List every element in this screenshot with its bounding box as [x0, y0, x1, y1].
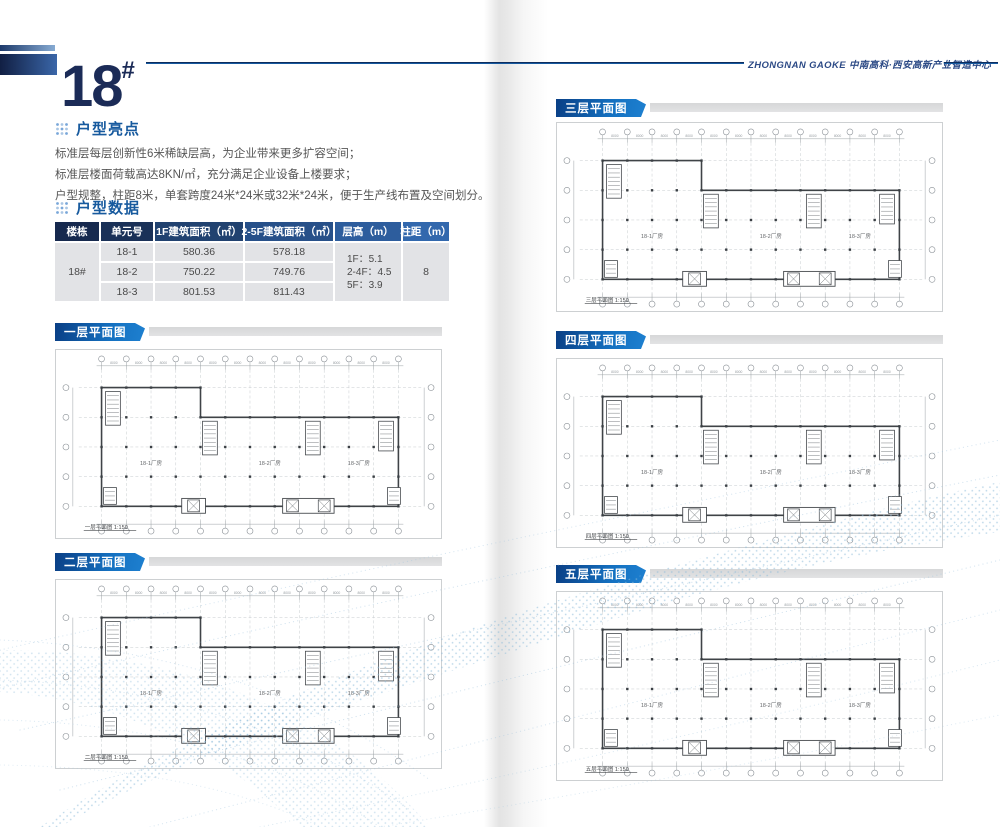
svg-text:8000: 8000 [184, 591, 192, 595]
brochure-spread: 18# ZHONGNAN GAOKE 中南高科·西安高新产业智造中心 户型亮点 … [0, 0, 1000, 827]
svg-text:8000: 8000 [209, 361, 217, 365]
plan-labelbar [149, 327, 442, 336]
svg-text:8000: 8000 [883, 370, 891, 374]
data-title-text: 户型数据 [76, 197, 140, 218]
plan-label-floor2: 二层平面图 [55, 553, 145, 571]
cell-area25f: 578.18 [245, 243, 333, 261]
col-header-unit: 单元号 [101, 222, 153, 241]
svg-text:18-1厂房: 18-1厂房 [140, 459, 163, 467]
floor-height-line: 2-4F：4.5 [347, 266, 391, 279]
svg-text:8000: 8000 [883, 134, 891, 138]
floor-plan-drawing: 8000800080008000800080008000800080008000… [557, 123, 942, 311]
cell-unit: 18-3 [101, 283, 153, 301]
brand-line: ZHONGNAN GAOKE 中南高科·西安高新产业智造中心 [748, 57, 944, 71]
page-fold-gutter [484, 0, 548, 827]
floor-plan-drawing: 8000800080008000800080008000800080008000… [56, 350, 441, 538]
svg-text:8000: 8000 [382, 361, 390, 365]
svg-text:8000: 8000 [135, 591, 143, 595]
plan-labelbar [650, 103, 943, 112]
floor2-plan-box: 8000800080008000800080008000800080008000… [55, 579, 442, 769]
floor-plan-drawing: 8000800080008000800080008000800080008000… [557, 592, 942, 780]
svg-text:8000: 8000 [760, 370, 768, 374]
plan-label-floor1: 一层平面图 [55, 323, 145, 341]
svg-text:三层平面图 1:150: 三层平面图 1:150 [586, 296, 629, 304]
svg-text:8000: 8000 [760, 134, 768, 138]
svg-text:8000: 8000 [661, 603, 669, 607]
cell-area1f: 750.22 [155, 263, 243, 281]
plan-labelbar [650, 569, 943, 578]
col-header-spacing: 柱距（m） [403, 222, 449, 241]
svg-text:8000: 8000 [135, 361, 143, 365]
svg-text:8000: 8000 [735, 370, 743, 374]
floor-plan-drawing: 8000800080008000800080008000800080008000… [557, 359, 942, 547]
svg-text:8000: 8000 [333, 591, 341, 595]
svg-text:8000: 8000 [308, 591, 316, 595]
cell-area25f: 749.76 [245, 263, 333, 281]
svg-text:8000: 8000 [283, 361, 291, 365]
svg-text:8000: 8000 [259, 591, 267, 595]
svg-text:18-3厂房: 18-3厂房 [348, 459, 371, 467]
svg-text:8000: 8000 [809, 370, 817, 374]
floor-height-line: 5F：3.9 [347, 279, 383, 292]
svg-text:18-3厂房: 18-3厂房 [348, 689, 371, 697]
svg-text:8000: 8000 [710, 603, 718, 607]
building-number: 18# [61, 40, 135, 118]
svg-text:8000: 8000 [859, 603, 867, 607]
svg-text:8000: 8000 [685, 370, 693, 374]
svg-text:8000: 8000 [636, 603, 644, 607]
floor3-plan-box: 8000800080008000800080008000800080008000… [556, 122, 943, 312]
svg-text:8000: 8000 [636, 370, 644, 374]
svg-text:8000: 8000 [859, 370, 867, 374]
building-number-hash: # [122, 57, 135, 84]
svg-text:二层平面图 1:150: 二层平面图 1:150 [85, 753, 128, 761]
highlight-line: 标准层楼面荷载高达8KN/㎡，充分满足企业设备上楼要求； [55, 165, 490, 186]
svg-text:18-2厂房: 18-2厂房 [760, 468, 783, 476]
svg-text:8000: 8000 [809, 134, 817, 138]
header-rule-right [944, 62, 998, 64]
floor4-plan-box: 8000800080008000800080008000800080008000… [556, 358, 943, 548]
svg-text:18-3厂房: 18-3厂房 [849, 232, 872, 240]
floor-height-line: 1F：5.1 [347, 253, 383, 266]
svg-text:8000: 8000 [834, 370, 842, 374]
data-section-title: 户型数据 [55, 197, 140, 218]
unit-data-table: 楼栋 单元号 1F建筑面积（㎡） 2-5F建筑面积（㎡） 层高（m） 柱距（m）… [55, 222, 443, 301]
svg-text:8000: 8000 [611, 134, 619, 138]
svg-text:18-1厂房: 18-1厂房 [140, 689, 163, 697]
floor1-plan-box: 8000800080008000800080008000800080008000… [55, 349, 442, 539]
col-header-building: 楼栋 [55, 222, 99, 241]
svg-text:8000: 8000 [735, 603, 743, 607]
svg-text:18-2厂房: 18-2厂房 [760, 232, 783, 240]
svg-text:18-1厂房: 18-1厂房 [641, 468, 664, 476]
dotted-square-icon [55, 122, 69, 136]
highlight-line: 标准层每层创新性6米稀缺层高，为企业带来更多扩容空间； [55, 144, 490, 165]
svg-text:8000: 8000 [110, 591, 118, 595]
building-number-value: 18 [61, 54, 122, 119]
highlights-title-text: 户型亮点 [76, 118, 140, 139]
cell-area1f: 580.36 [155, 243, 243, 261]
svg-text:8000: 8000 [685, 603, 693, 607]
svg-text:8000: 8000 [636, 134, 644, 138]
svg-text:8000: 8000 [661, 370, 669, 374]
plan-labelbar [650, 335, 943, 344]
svg-text:8000: 8000 [382, 591, 390, 595]
header-accent-bar-thick [0, 54, 57, 75]
svg-text:18-1厂房: 18-1厂房 [641, 701, 664, 709]
cell-floor-heights: 1F：5.1 2-4F：4.5 5F：3.9 [335, 243, 401, 301]
svg-text:18-1厂房: 18-1厂房 [641, 232, 664, 240]
dotted-square-icon [55, 201, 69, 215]
svg-text:8000: 8000 [283, 591, 291, 595]
svg-text:8000: 8000 [358, 591, 366, 595]
highlights-section-title: 户型亮点 [55, 118, 140, 139]
svg-text:8000: 8000 [859, 134, 867, 138]
svg-text:四层平面图 1:150: 四层平面图 1:150 [586, 532, 629, 540]
svg-text:18-3厂房: 18-3厂房 [849, 468, 872, 476]
cell-area1f: 801.53 [155, 283, 243, 301]
cell-area25f: 811.43 [245, 283, 333, 301]
svg-text:8000: 8000 [834, 603, 842, 607]
col-header-area-1f: 1F建筑面积（㎡） [155, 222, 243, 241]
svg-text:18-2厂房: 18-2厂房 [259, 459, 282, 467]
svg-text:8000: 8000 [358, 361, 366, 365]
svg-text:18-3厂房: 18-3厂房 [849, 701, 872, 709]
svg-text:8000: 8000 [883, 603, 891, 607]
header-accent-bar-thin [0, 45, 55, 51]
plan-labelbar [149, 557, 442, 566]
plan-label-floor3: 三层平面图 [556, 99, 646, 117]
svg-text:8000: 8000 [735, 134, 743, 138]
svg-text:18-2厂房: 18-2厂房 [760, 701, 783, 709]
floor-plan-drawing: 8000800080008000800080008000800080008000… [56, 580, 441, 768]
svg-text:8000: 8000 [784, 134, 792, 138]
svg-text:8000: 8000 [784, 603, 792, 607]
svg-text:五层平面图 1:150: 五层平面图 1:150 [586, 765, 629, 773]
cell-unit: 18-2 [101, 263, 153, 281]
col-header-height: 层高（m） [335, 222, 401, 241]
col-header-area-2-5f: 2-5F建筑面积（㎡） [245, 222, 333, 241]
svg-text:8000: 8000 [710, 370, 718, 374]
svg-text:8000: 8000 [611, 370, 619, 374]
svg-text:8000: 8000 [661, 134, 669, 138]
svg-text:8000: 8000 [809, 603, 817, 607]
svg-text:8000: 8000 [611, 603, 619, 607]
svg-text:8000: 8000 [234, 361, 242, 365]
svg-text:8000: 8000 [110, 361, 118, 365]
svg-text:8000: 8000 [333, 361, 341, 365]
header-rule-left [146, 62, 744, 64]
svg-text:8000: 8000 [209, 591, 217, 595]
plan-label-floor5: 五层平面图 [556, 565, 646, 583]
svg-text:18-2厂房: 18-2厂房 [259, 689, 282, 697]
svg-text:8000: 8000 [184, 361, 192, 365]
cell-unit: 18-1 [101, 243, 153, 261]
cell-building: 18# [55, 243, 99, 301]
svg-text:8000: 8000 [784, 370, 792, 374]
plan-label-floor4: 四层平面图 [556, 331, 646, 349]
svg-text:8000: 8000 [760, 603, 768, 607]
cell-column-spacing: 8 [403, 243, 449, 301]
svg-text:8000: 8000 [259, 361, 267, 365]
svg-text:8000: 8000 [685, 134, 693, 138]
svg-text:8000: 8000 [160, 361, 168, 365]
svg-text:8000: 8000 [234, 591, 242, 595]
svg-text:一层平面图 1:150: 一层平面图 1:150 [85, 523, 128, 531]
floor5-plan-box: 8000800080008000800080008000800080008000… [556, 591, 943, 781]
svg-text:8000: 8000 [160, 591, 168, 595]
svg-text:8000: 8000 [834, 134, 842, 138]
svg-text:8000: 8000 [308, 361, 316, 365]
svg-text:8000: 8000 [710, 134, 718, 138]
